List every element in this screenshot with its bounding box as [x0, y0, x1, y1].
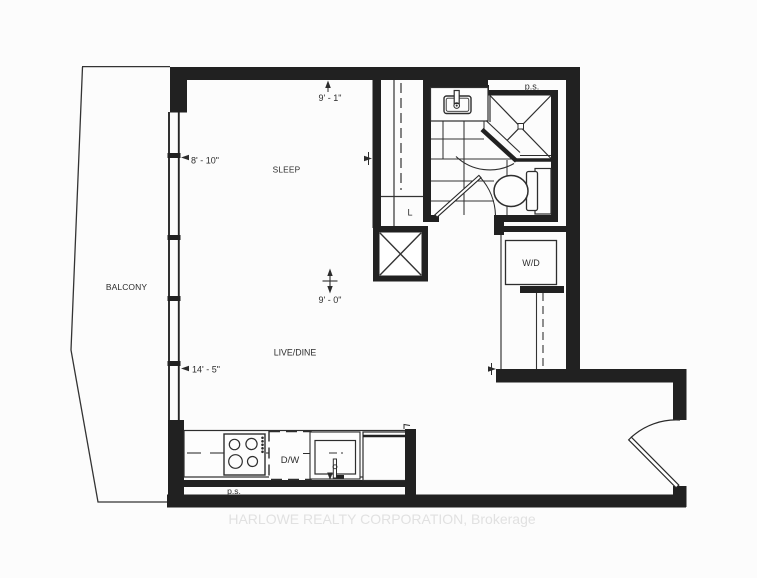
- svg-text:HARLOWE REALTY CORPORATION, Br: HARLOWE REALTY CORPORATION, Brokerage: [228, 511, 536, 527]
- svg-text:9' - 1": 9' - 1": [319, 93, 342, 103]
- svg-text:LIVE/DINE: LIVE/DINE: [274, 348, 317, 358]
- svg-text:p.s.: p.s.: [227, 486, 241, 496]
- svg-text:8' - 10": 8' - 10": [191, 156, 219, 166]
- svg-text:14' - 5": 14' - 5": [192, 365, 220, 375]
- svg-text:BALCONY: BALCONY: [106, 282, 148, 292]
- svg-text:p.s.: p.s.: [525, 82, 540, 92]
- svg-text:D/W: D/W: [281, 455, 300, 466]
- svg-text:SLEEP: SLEEP: [273, 165, 301, 175]
- svg-text:W/D: W/D: [522, 258, 540, 268]
- svg-text:9' - 0": 9' - 0": [319, 295, 342, 305]
- svg-text:L: L: [407, 208, 412, 218]
